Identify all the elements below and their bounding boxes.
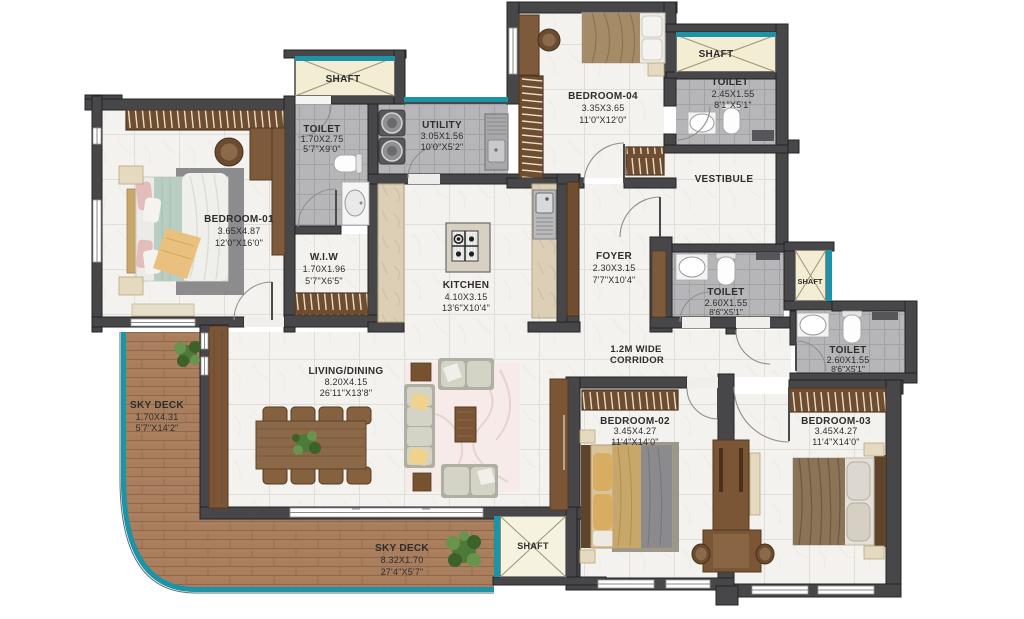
svg-text:CORRIDOR: CORRIDOR (610, 355, 664, 366)
svg-text:8'6"X5'1": 8'6"X5'1" (709, 307, 743, 317)
svg-text:10'0"X5'2": 10'0"X5'2" (421, 142, 464, 152)
svg-text:3.45X4.27: 3.45X4.27 (815, 426, 858, 436)
svg-text:5'7"X6'5": 5'7"X6'5" (305, 276, 343, 286)
svg-text:SHAFT: SHAFT (699, 49, 734, 60)
svg-text:8.32X1.70: 8.32X1.70 (381, 555, 424, 565)
svg-text:UTILITY: UTILITY (422, 120, 462, 131)
svg-text:3.65X4.87: 3.65X4.87 (218, 226, 261, 236)
svg-text:11'4"X14'0": 11'4"X14'0" (611, 437, 658, 447)
svg-text:11'4"X14'0": 11'4"X14'0" (812, 437, 859, 447)
svg-text:SHAFT: SHAFT (517, 541, 549, 551)
svg-text:13'6"X10'4": 13'6"X10'4" (442, 303, 490, 313)
svg-text:BEDROOM-01: BEDROOM-01 (204, 214, 274, 225)
svg-text:KITCHEN: KITCHEN (443, 280, 490, 291)
svg-text:TOILET: TOILET (711, 77, 748, 88)
svg-text:W.I.W: W.I.W (310, 252, 338, 263)
svg-text:1.70X2.75: 1.70X2.75 (301, 134, 344, 144)
svg-text:1.2M WIDE: 1.2M WIDE (610, 344, 661, 355)
svg-text:12'0"X16'0": 12'0"X16'0" (215, 238, 263, 248)
svg-text:2.30X3.15: 2.30X3.15 (593, 263, 636, 273)
svg-text:8'1"X5'1": 8'1"X5'1" (714, 100, 752, 110)
svg-text:26'11"X13'8": 26'11"X13'8" (320, 388, 373, 398)
svg-text:11'0"X12'0": 11'0"X12'0" (579, 115, 626, 125)
svg-text:3.05X1.56: 3.05X1.56 (421, 131, 464, 141)
svg-text:4.10X3.15: 4.10X3.15 (445, 292, 488, 302)
svg-text:2.45X1.55: 2.45X1.55 (712, 89, 755, 99)
svg-text:3.35X3.65: 3.35X3.65 (582, 103, 625, 113)
svg-text:FOYER: FOYER (596, 251, 632, 262)
svg-text:SKY DECK: SKY DECK (375, 543, 429, 554)
svg-text:5'7"X9'0": 5'7"X9'0" (303, 144, 341, 154)
svg-text:3.45X4.27: 3.45X4.27 (614, 426, 657, 436)
svg-text:1.70X4.31: 1.70X4.31 (136, 412, 179, 422)
svg-text:SHAFT: SHAFT (798, 277, 823, 286)
svg-text:1.70X1.96: 1.70X1.96 (303, 264, 346, 274)
svg-text:8.20X4.15: 8.20X4.15 (325, 377, 368, 387)
svg-text:BEDROOM-04: BEDROOM-04 (568, 91, 638, 102)
svg-text:7'7"X10'4": 7'7"X10'4" (593, 275, 636, 285)
svg-text:5'7"X14'2": 5'7"X14'2" (136, 423, 179, 433)
svg-text:SHAFT: SHAFT (326, 74, 361, 85)
svg-text:SKY DECK: SKY DECK (130, 400, 184, 411)
svg-text:27'4"X5'7": 27'4"X5'7" (381, 567, 424, 577)
svg-text:TOILET: TOILET (707, 287, 744, 298)
svg-text:VESTIBULE: VESTIBULE (695, 174, 754, 185)
svg-text:LIVING/DINING: LIVING/DINING (308, 366, 383, 377)
svg-text:8'6"X5'1": 8'6"X5'1" (831, 364, 865, 374)
